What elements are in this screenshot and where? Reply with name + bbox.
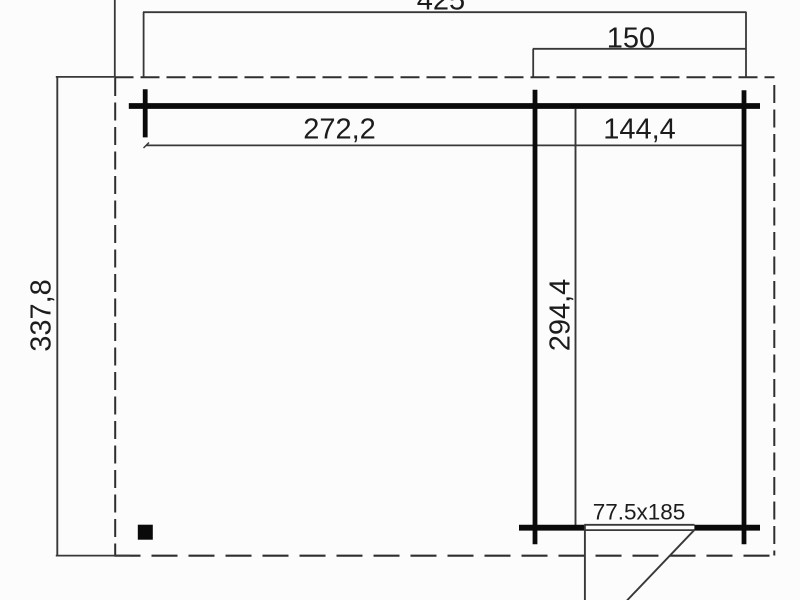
svg-text:294,4: 294,4 (545, 279, 577, 352)
svg-text:144,4: 144,4 (603, 114, 676, 146)
svg-text:77.5x185: 77.5x185 (593, 500, 686, 525)
svg-text:337,8: 337,8 (25, 279, 57, 352)
svg-text:150: 150 (607, 22, 655, 54)
svg-text:272,2: 272,2 (303, 114, 376, 146)
svg-text:425: 425 (417, 0, 465, 17)
